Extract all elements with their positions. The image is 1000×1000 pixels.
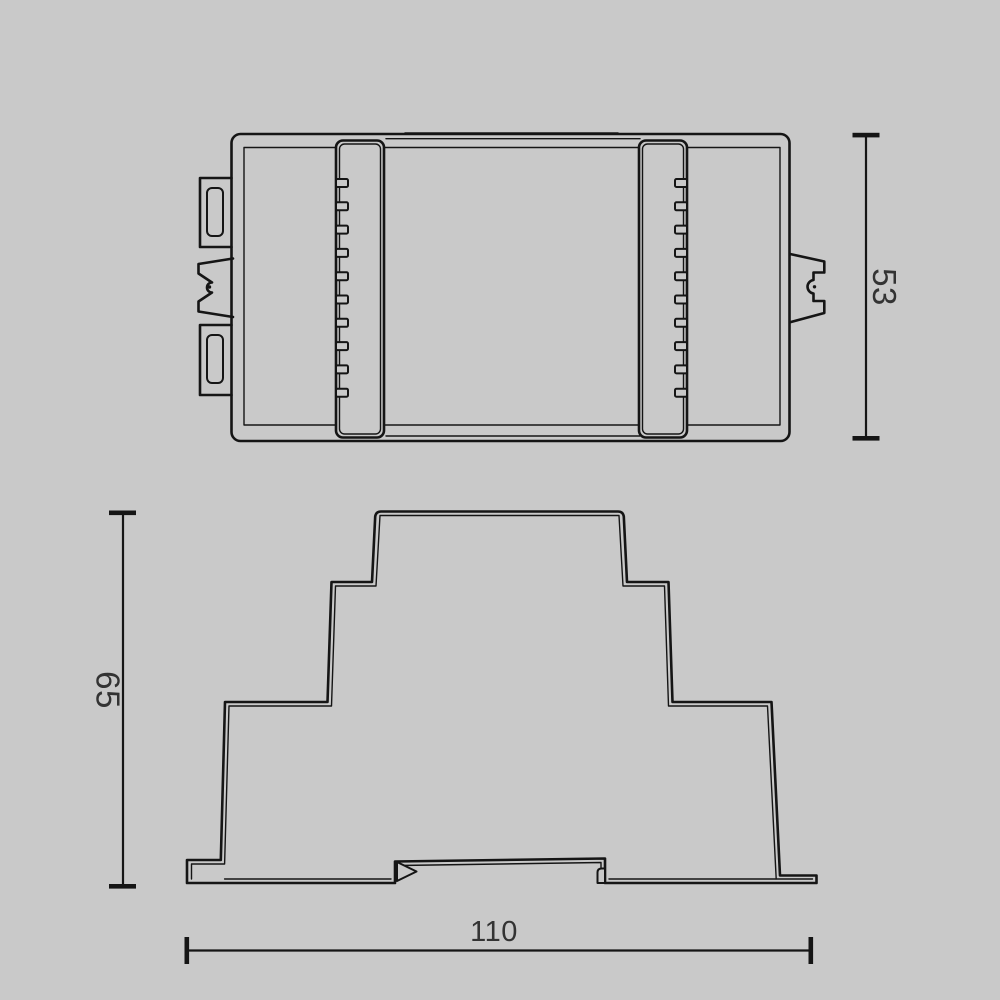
dimension-tick: [109, 884, 136, 889]
dimension-tick: [809, 937, 814, 964]
terminal-tooth: [675, 342, 687, 350]
terminal-tooth: [675, 179, 687, 187]
dimension-tick: [109, 511, 136, 516]
profile-notch-inner: [399, 863, 601, 880]
terminal-tooth: [336, 365, 348, 373]
terminal-strip-right: [639, 141, 687, 438]
terminal-tooth: [336, 342, 348, 350]
dimension-label-53: 53: [866, 268, 903, 306]
terminal-tooth: [336, 389, 348, 397]
terminal-tooth: [336, 202, 348, 210]
mounting-claw-left: [199, 259, 234, 318]
terminal-strip-left: [336, 141, 384, 438]
dimension-tick: [185, 937, 190, 964]
terminal-tooth: [675, 365, 687, 373]
terminal-tooth: [675, 226, 687, 234]
terminal-tooth: [675, 272, 687, 280]
terminal-tooth: [336, 272, 348, 280]
terminal-tooth: [336, 296, 348, 304]
profile-outline: [187, 512, 817, 884]
dimension-top-view-height: 53: [853, 133, 904, 441]
technical-drawing: 53 65 110: [0, 0, 1000, 1000]
housing-inner-edge: [244, 148, 780, 426]
dimension-front-height: 65: [90, 511, 137, 889]
front-profile-view: 65 110: [90, 511, 817, 965]
mounting-tab-bottom-left: [200, 325, 232, 395]
housing-outline: [232, 134, 790, 441]
mounting-tab-top-left: [200, 178, 232, 247]
dimension-label-65: 65: [90, 671, 127, 709]
profile-inner-wall: [192, 516, 813, 880]
terminal-tooth: [675, 249, 687, 257]
din-notch-stop: [598, 869, 606, 884]
terminal-tooth: [336, 249, 348, 257]
terminal-tooth: [675, 389, 687, 397]
terminal-tooth: [336, 226, 348, 234]
terminal-tooth: [336, 319, 348, 327]
dimension-tick: [853, 436, 880, 441]
dimension-label-110: 110: [470, 916, 518, 948]
terminal-tooth: [336, 179, 348, 187]
dimension-tick: [853, 133, 880, 138]
mounting-clip-right: [790, 254, 824, 322]
dimension-front-width: 110: [185, 916, 814, 964]
terminal-tooth: [675, 296, 687, 304]
terminal-tooth: [675, 202, 687, 210]
top-view: 53: [199, 133, 904, 441]
terminal-tooth: [675, 319, 687, 327]
